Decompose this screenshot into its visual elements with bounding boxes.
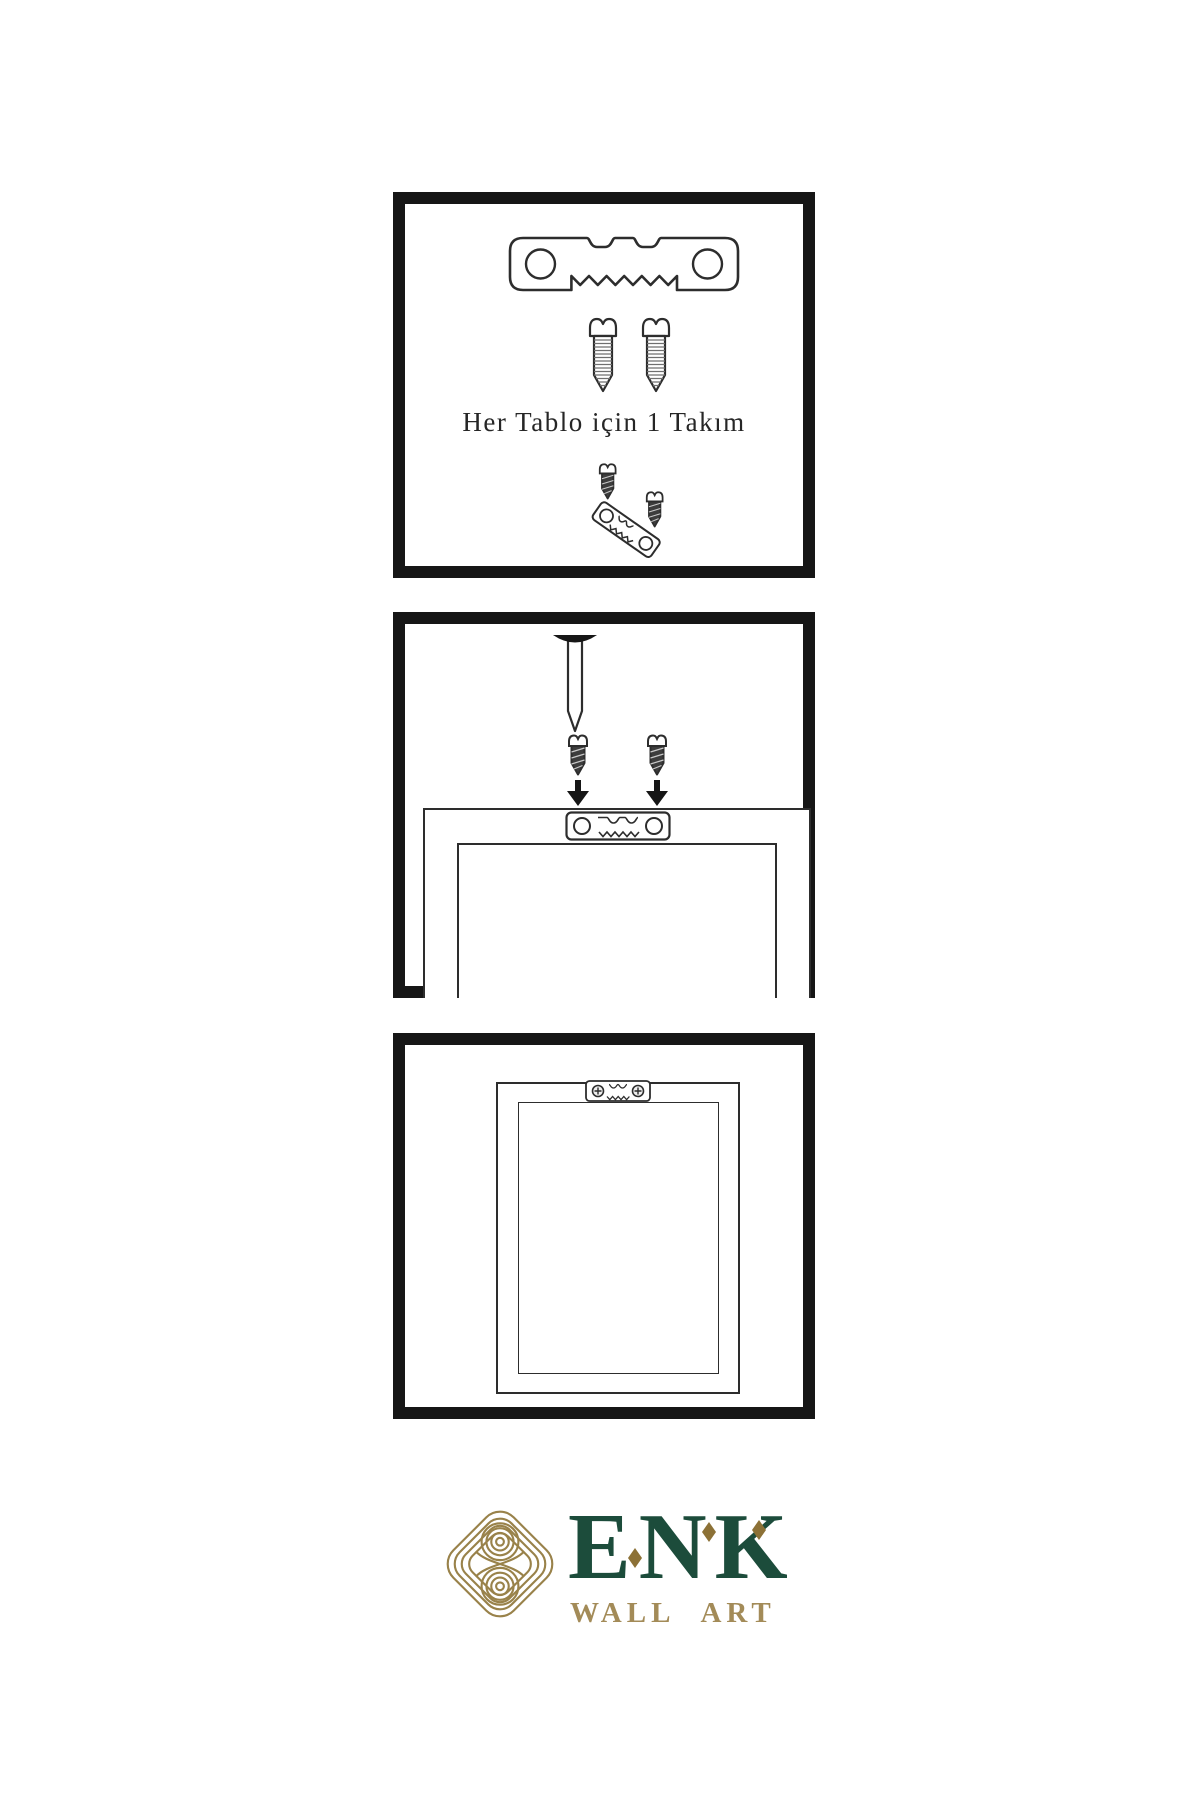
kit-caption: Her Tablo için 1 Takım — [405, 407, 803, 438]
hanger-mounted-icon — [585, 1080, 651, 1102]
hanger-plate-icon — [565, 811, 671, 841]
frame-front-inner-edge — [518, 1102, 719, 1374]
knot-icon — [437, 1500, 563, 1628]
frame-back-inner-edge — [457, 843, 777, 998]
arrow-down-icon — [567, 780, 589, 806]
instruction-sheet: Her Tablo için 1 Takım — [0, 0, 1200, 1800]
brand-name: ENK — [568, 1500, 796, 1594]
sawtooth-hanger-tilted-icon — [587, 456, 682, 564]
brand-subtitle: WALL ART — [570, 1599, 776, 1628]
panel-hardware-kit: Her Tablo için 1 Takım — [393, 192, 815, 578]
screw-dark-icon — [567, 733, 589, 777]
screw-dark-icon — [646, 733, 668, 777]
screw-icon — [585, 315, 621, 395]
arrow-down-icon — [646, 780, 668, 806]
nail-icon — [552, 635, 598, 735]
screw-icon — [638, 315, 674, 395]
screw-dark-icon — [647, 492, 663, 526]
sawtooth-hanger-icon — [507, 235, 741, 293]
panel-hung-frame — [393, 1033, 815, 1419]
screw-dark-icon — [600, 464, 616, 498]
panel-wall-mounting — [393, 612, 815, 998]
